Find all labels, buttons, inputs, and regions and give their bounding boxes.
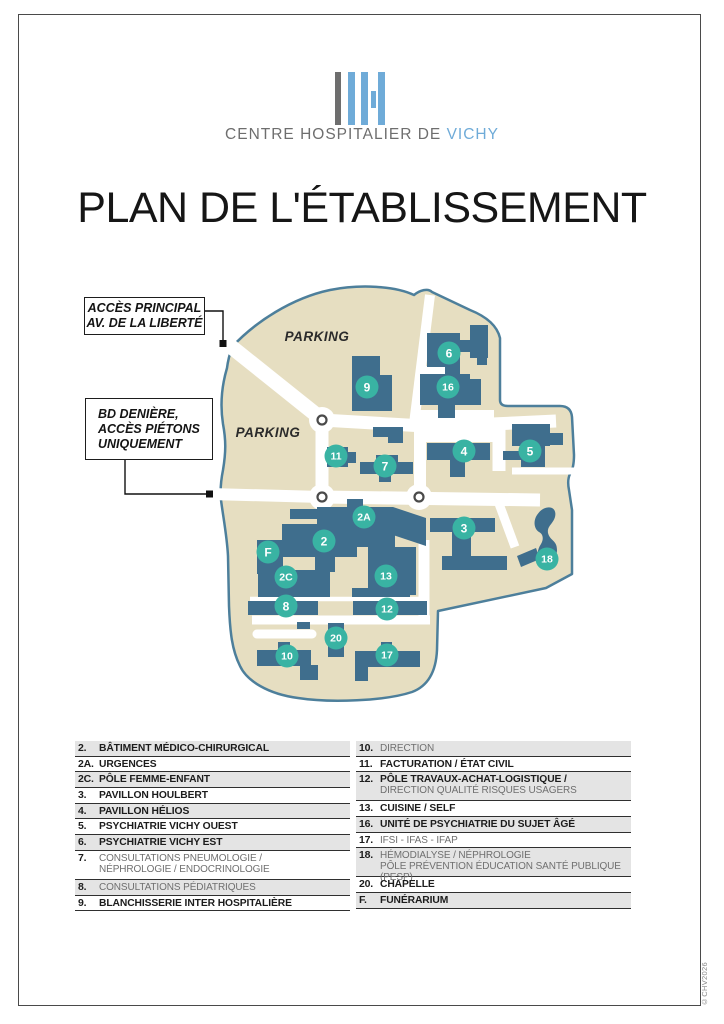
legend-row: 4.PAVILLON HÉLIOS	[75, 804, 350, 820]
legend-row-number: 11.	[359, 759, 380, 770]
legend-row: 8.CONSULTATIONS PÉDIATRIQUES	[75, 880, 350, 896]
legend-row-number: 2C.	[78, 774, 99, 785]
svg-text:8: 8	[283, 600, 290, 614]
legend-row-number: F.	[359, 895, 380, 906]
map-marker-9: 9	[356, 376, 379, 399]
callout-line: UNIQUEMENT	[98, 437, 182, 452]
legend-row-number: 3.	[78, 790, 99, 801]
legend-row-label: DIRECTION	[380, 743, 434, 754]
parking-label: PARKING	[236, 425, 301, 440]
callout-main-access: ACCÈS PRINCIPALAV. DE LA LIBERTÉ	[84, 297, 205, 335]
legend-row-label: UNITÉ DE PSYCHIATRIE DU SUJET ÂGÉ	[380, 819, 575, 830]
legend-row-label: PSYCHIATRIE VICHY OUEST	[99, 821, 238, 832]
legend-row: 11.FACTURATION / ÉTAT CIVIL	[356, 757, 631, 773]
svg-text:9: 9	[364, 381, 371, 395]
svg-text:16: 16	[442, 382, 454, 394]
legend-row-number: 10.	[359, 743, 380, 754]
legend-row-label: BLANCHISSERIE INTER HOSPITALIÈRE	[99, 898, 292, 909]
map-marker-20: 20	[325, 627, 348, 650]
legend-row-label: PÔLE TRAVAUX-ACHAT-LOGISTIQUE /DIRECTION…	[380, 774, 577, 796]
legend-row-number: 2.	[78, 743, 99, 754]
map-marker-6: 6	[438, 342, 461, 365]
callout-line: BD DENIÈRE,	[98, 407, 179, 422]
legend-row-label-line2: NÉPHROLOGIE / ENDOCRINOLOGIE	[99, 864, 270, 875]
legend-row: 6.PSYCHIATRIE VICHY EST	[75, 835, 350, 851]
legend-row-label-line2: DIRECTION QUALITÉ RISQUES USAGERS	[380, 785, 577, 796]
map-marker-F: F	[257, 541, 280, 564]
legend-row-label: URGENCES	[99, 759, 157, 770]
copyright-note: ©CHV2026	[700, 950, 709, 1006]
svg-text:12: 12	[381, 604, 393, 616]
legend-row-number: 6.	[78, 837, 99, 848]
legend-row: 2.BÂTIMENT MÉDICO-CHIRURGICAL	[75, 741, 350, 757]
map-marker-7: 7	[374, 455, 397, 478]
legend-row-number: 17.	[359, 835, 380, 846]
legend-row: 12.PÔLE TRAVAUX-ACHAT-LOGISTIQUE /DIRECT…	[356, 772, 631, 801]
legend-row: 18.HÉMODIALYSE / NÉPHROLOGIEPÔLE PRÉVENT…	[356, 848, 631, 877]
map-marker-4: 4	[453, 440, 476, 463]
legend-row-number: 7.	[78, 853, 99, 864]
svg-text:18: 18	[541, 554, 553, 566]
svg-text:2: 2	[321, 535, 328, 549]
legend-row-label: CUISINE / SELF	[380, 803, 455, 814]
map-marker-11: 11	[325, 445, 348, 468]
legend-row-number: 9.	[78, 898, 99, 909]
parking-label: PARKING	[285, 329, 350, 344]
legend-column-right: 10.DIRECTION11.FACTURATION / ÉTAT CIVIL1…	[356, 741, 631, 909]
legend-row: 13.CUISINE / SELF	[356, 801, 631, 817]
map-marker-3: 3	[453, 517, 476, 540]
legend-row-label: PAVILLON HOULBERT	[99, 790, 208, 801]
legend-row: 5.PSYCHIATRIE VICHY OUEST	[75, 819, 350, 835]
callout-pedestrian-access: BD DENIÈRE,ACCÈS PIÉTONSUNIQUEMENT	[85, 398, 213, 460]
map-marker-12: 12	[376, 598, 399, 621]
legend-row: 17.IFSI - IFAS - IFAP	[356, 833, 631, 849]
map-marker-13: 13	[375, 565, 398, 588]
legend-row-label: BÂTIMENT MÉDICO-CHIRURGICAL	[99, 743, 269, 754]
map-marker-16: 16	[437, 376, 460, 399]
callout-line: ACCÈS PIÉTONS	[98, 422, 200, 437]
legend-row: F.FUNÉRARIUM	[356, 893, 631, 909]
legend-row-label: CONSULTATIONS PÉDIATRIQUES	[99, 882, 256, 893]
legend-row-number: 18.	[359, 850, 380, 861]
svg-text:20: 20	[330, 633, 342, 645]
callout-line: AV. DE LA LIBERTÉ	[87, 316, 203, 331]
svg-text:5: 5	[527, 445, 534, 459]
map-marker-2C: 2C	[275, 566, 298, 589]
legend-row-label: FUNÉRARIUM	[380, 895, 448, 906]
legend-row-label: PSYCHIATRIE VICHY EST	[99, 837, 222, 848]
svg-text:17: 17	[381, 650, 393, 662]
legend-row-number: 5.	[78, 821, 99, 832]
legend-row-number: 12.	[359, 774, 380, 785]
svg-text:7: 7	[382, 460, 389, 474]
legend-row-label: CHAPELLE	[380, 879, 435, 890]
legend-row-number: 16.	[359, 819, 380, 830]
legend-row: 16.UNITÉ DE PSYCHIATRIE DU SUJET ÂGÉ	[356, 817, 631, 833]
legend-row-label: PAVILLON HÉLIOS	[99, 806, 189, 817]
legend-row: 9.BLANCHISSERIE INTER HOSPITALIÈRE	[75, 896, 350, 912]
map-marker-10: 10	[276, 645, 299, 668]
svg-text:F: F	[264, 546, 271, 560]
svg-text:2C: 2C	[279, 572, 293, 584]
legend-row: 2C.PÔLE FEMME-ENFANT	[75, 772, 350, 788]
svg-text:13: 13	[380, 571, 392, 583]
svg-text:2A: 2A	[357, 512, 371, 524]
legend-row-label: CONSULTATIONS PNEUMOLOGIE /NÉPHROLOGIE /…	[99, 853, 270, 875]
legend-row: 7.CONSULTATIONS PNEUMOLOGIE /NÉPHROLOGIE…	[75, 851, 350, 880]
svg-text:11: 11	[330, 451, 341, 463]
map-marker-8: 8	[275, 595, 298, 618]
legend-row-number: 8.	[78, 882, 99, 893]
svg-text:3: 3	[461, 522, 468, 536]
svg-text:4: 4	[461, 445, 468, 459]
svg-text:6: 6	[446, 347, 453, 361]
map-marker-5: 5	[519, 440, 542, 463]
legend-row: 3.PAVILLON HOULBERT	[75, 788, 350, 804]
legend-column-left: 2.BÂTIMENT MÉDICO-CHIRURGICAL2A.URGENCES…	[75, 741, 350, 911]
legend-row-number: 20.	[359, 879, 380, 890]
legend-row-label: IFSI - IFAS - IFAP	[380, 835, 458, 846]
legend-row-number: 4.	[78, 806, 99, 817]
map-marker-17: 17	[376, 644, 399, 667]
legend-row-label: FACTURATION / ÉTAT CIVIL	[380, 759, 514, 770]
legend-row-label: PÔLE FEMME-ENFANT	[99, 774, 210, 785]
svg-text:10: 10	[281, 651, 293, 663]
legend-row-number: 2A.	[78, 759, 99, 770]
legend-row-number: 13.	[359, 803, 380, 814]
map-marker-18: 18	[536, 548, 559, 571]
callout-line: ACCÈS PRINCIPAL	[88, 301, 202, 316]
map-marker-2A: 2A	[353, 506, 376, 529]
legend-row: 10.DIRECTION	[356, 741, 631, 757]
legend-row: 2A.URGENCES	[75, 757, 350, 773]
map-marker-2: 2	[313, 530, 336, 553]
